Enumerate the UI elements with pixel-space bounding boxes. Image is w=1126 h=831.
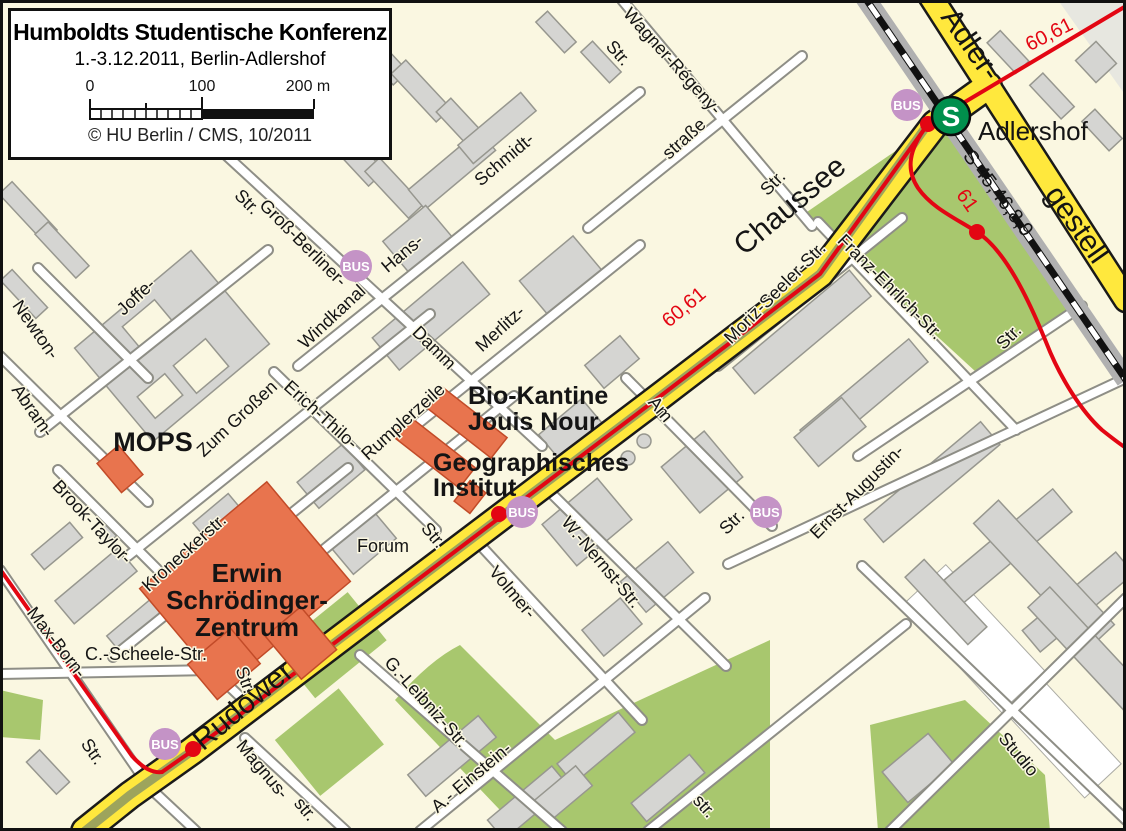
bus-stop-badge: BUS xyxy=(891,89,923,121)
scale-tick-label: 0 xyxy=(86,78,95,95)
bus-stop-text: BUS xyxy=(752,505,780,520)
street-label: Forum xyxy=(357,536,409,556)
landmark-label: Erwin xyxy=(212,558,283,588)
scale-bar: 0 100 200 m xyxy=(50,75,350,123)
map-title: Humboldts Studentische Konferenz xyxy=(11,19,389,46)
landmark-label: Zentrum xyxy=(195,612,299,642)
bus-stop-text: BUS xyxy=(893,98,921,113)
copyright-note: © HU Berlin / CMS, 10/2011 xyxy=(11,125,389,146)
map-legend-box: Humboldts Studentische Konferenz 1.-3.12… xyxy=(8,8,392,160)
station-name-label: Adlershof xyxy=(978,116,1089,146)
scale-ticks xyxy=(90,97,314,109)
tram-stop-dot xyxy=(491,506,507,522)
scale-tick-label: 100 xyxy=(189,78,216,95)
bus-stop-badge: BUS xyxy=(340,250,372,282)
bus-stop-text: BUS xyxy=(508,505,536,520)
landmark-label: MOPS xyxy=(113,427,193,457)
bus-stop-badge: BUS xyxy=(506,496,538,528)
landmark-label: Bio-Kantine xyxy=(468,382,608,410)
tram-stop-dot xyxy=(969,224,985,240)
landmark-label: Geographisches xyxy=(433,449,629,477)
bus-stop-badge: BUS xyxy=(149,728,181,760)
landmark-label: Institut xyxy=(433,474,517,502)
sbahn-logo-letter: S xyxy=(942,101,961,132)
scale-tick-label: 200 m xyxy=(286,78,330,95)
bus-stop-badge: BUS xyxy=(750,496,782,528)
bus-stop-text: BUS xyxy=(342,259,370,274)
street-label: C.-Scheele-Str. xyxy=(85,644,207,664)
landmark-label: Schrödinger- xyxy=(166,585,328,615)
map-subtitle: 1.-3.12.2011, Berlin-Adlershof xyxy=(11,49,389,71)
landmark-label: Jouis Nour xyxy=(468,408,599,436)
bus-stop-text: BUS xyxy=(151,737,179,752)
circle-shape xyxy=(637,434,651,448)
map-screenshot: S Adlershof Wagner-Régeny-Str.straßeSchm… xyxy=(0,0,1126,831)
scale-segment-solid xyxy=(202,109,314,119)
